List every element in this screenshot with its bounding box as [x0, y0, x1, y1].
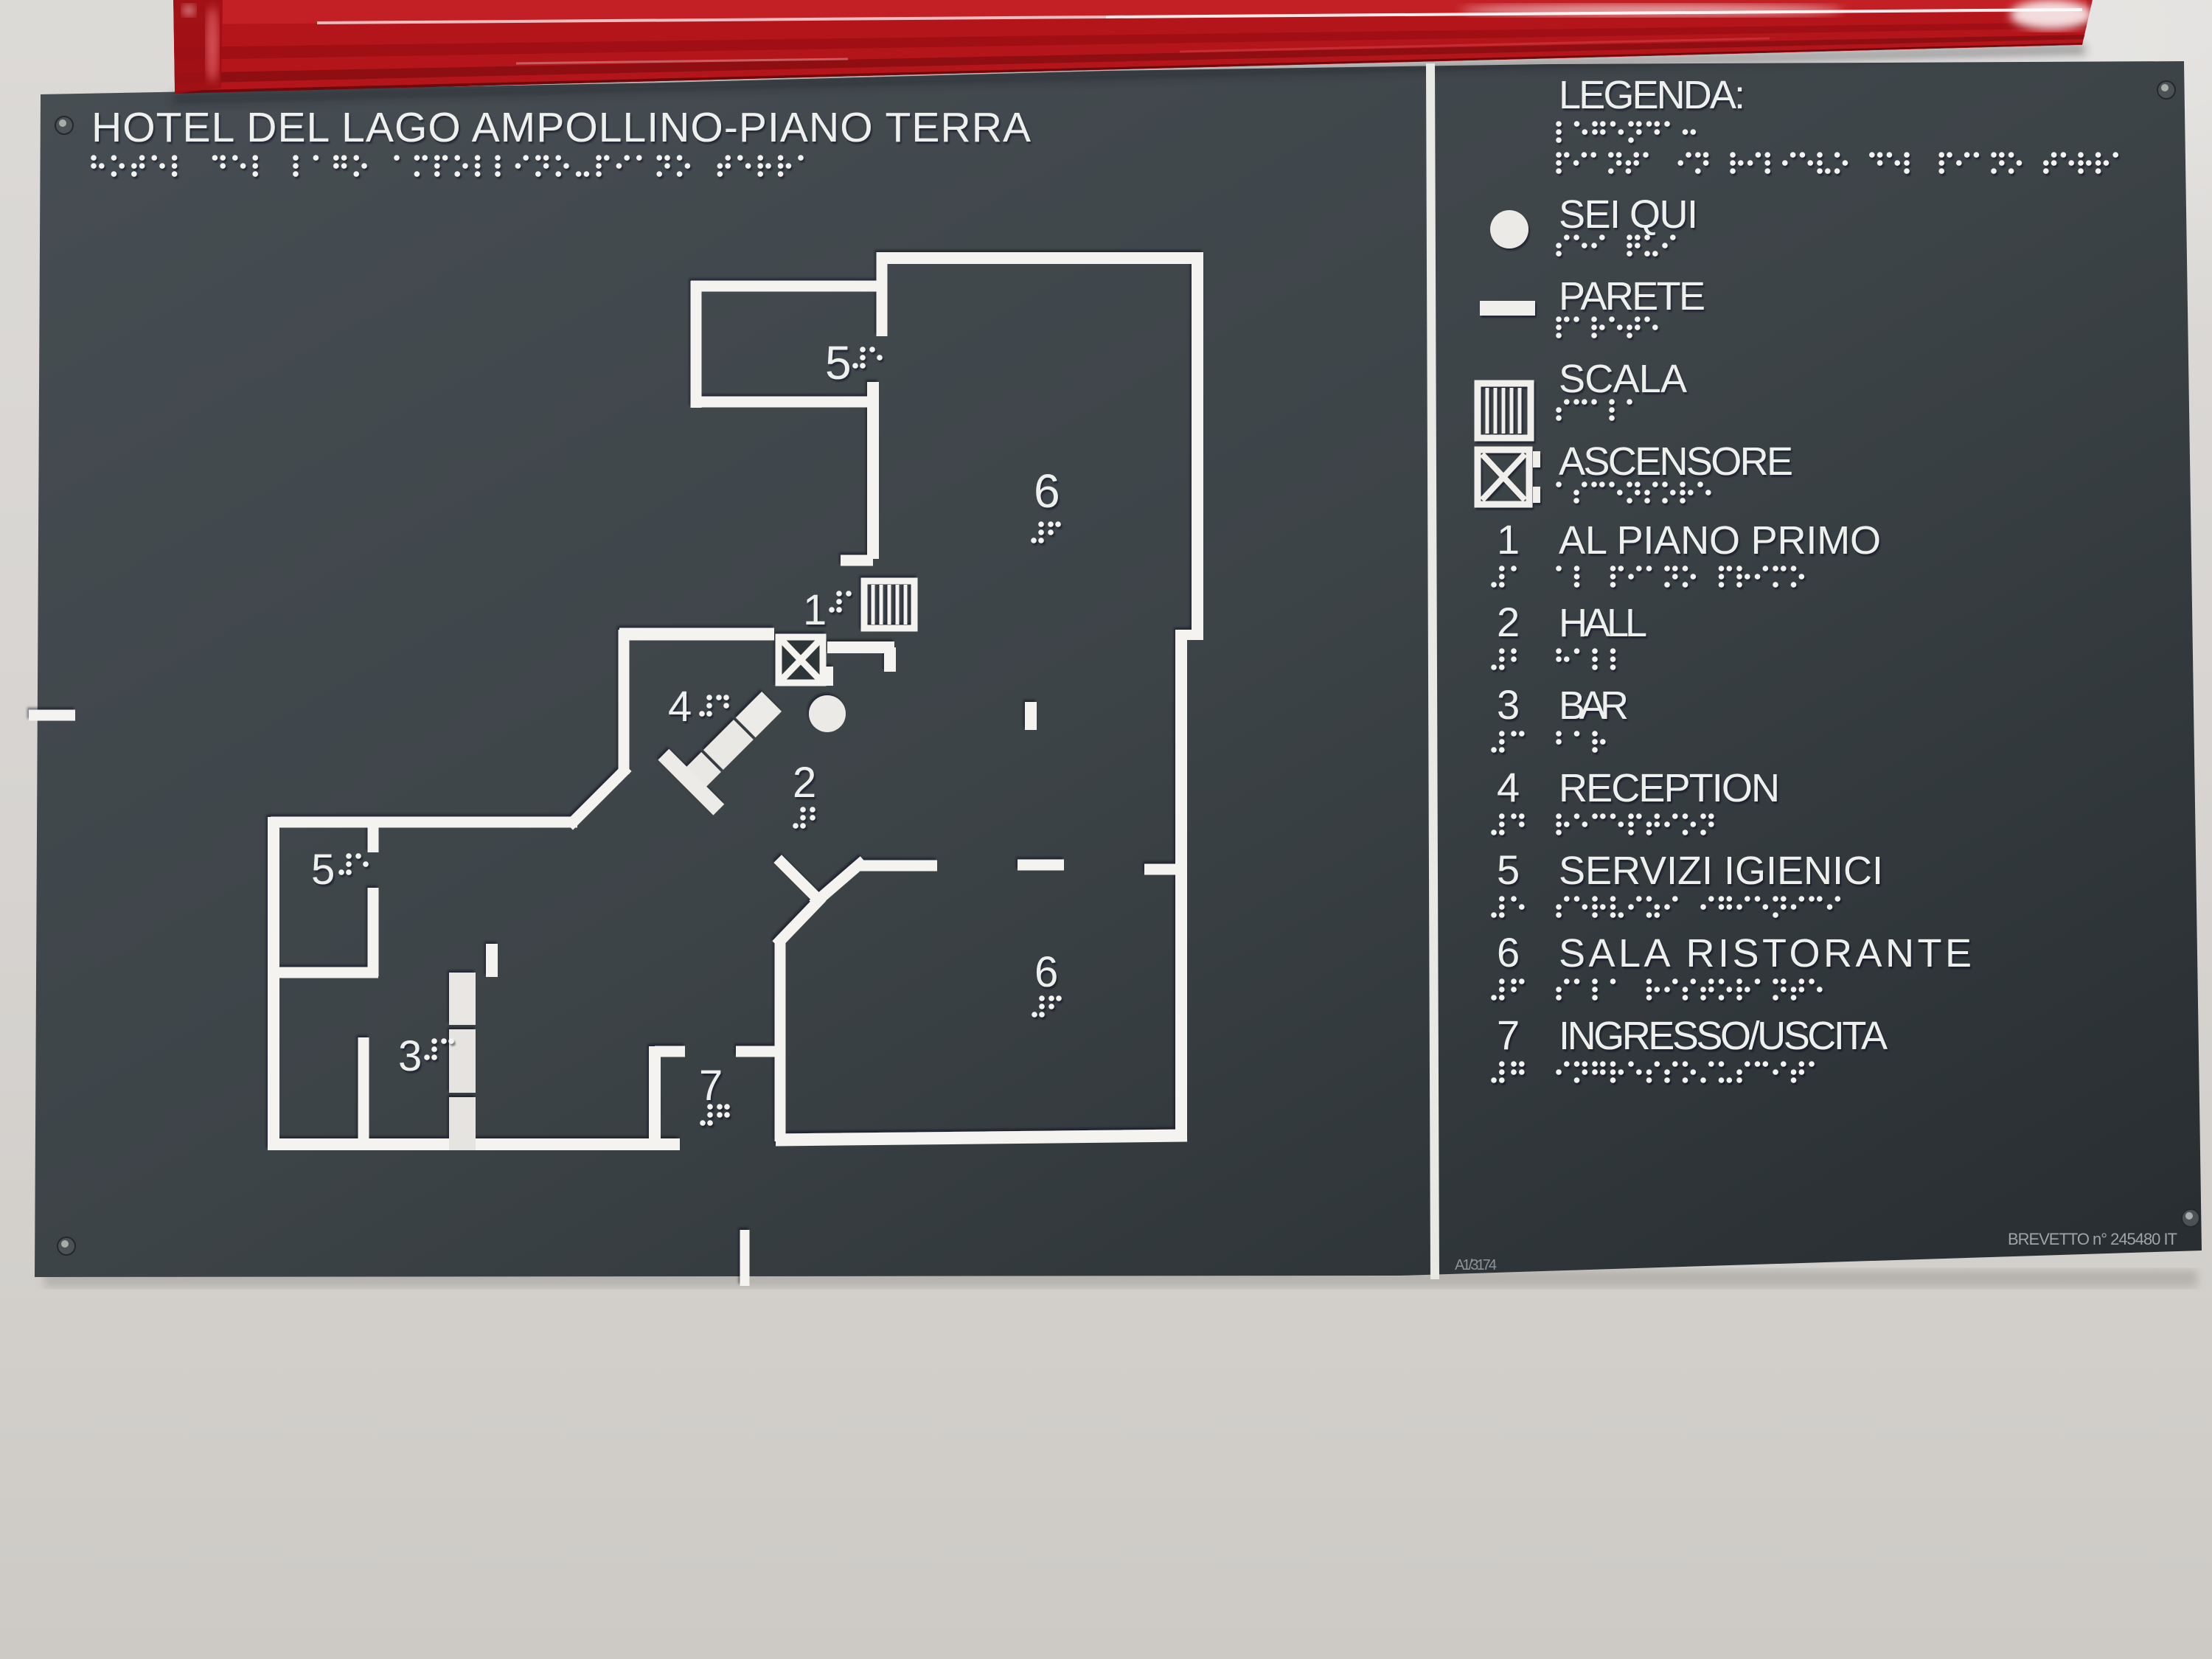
svg-text:BREVETTO n° 245480 IT: BREVETTO n° 245480 IT	[2008, 1230, 2177, 1248]
svg-text:ASCENSORE: ASCENSORE	[1559, 439, 1793, 484]
svg-text:AL PIANO PRIMO: AL PIANO PRIMO	[1559, 518, 1881, 563]
svg-text:BAR: BAR	[1559, 684, 1629, 728]
svg-text:5: 5	[1497, 846, 1520, 893]
svg-text:6: 6	[1497, 929, 1520, 975]
svg-text:SERVIZI IGIENICI: SERVIZI IGIENICI	[1559, 849, 1883, 893]
svg-text:4: 4	[668, 683, 692, 731]
svg-text:5: 5	[825, 336, 852, 389]
svg-text:HOTEL DEL LAGO AMPOLLINO-PIANO: HOTEL DEL LAGO AMPOLLINO-PIANO TERRA	[91, 104, 1031, 151]
svg-text:6: 6	[1034, 948, 1058, 996]
svg-text:SCALA: SCALA	[1559, 357, 1687, 401]
svg-text:1: 1	[1497, 516, 1520, 563]
svg-text:3: 3	[1497, 681, 1520, 728]
svg-text:3: 3	[398, 1032, 422, 1080]
svg-text:INGRESSO/USCITA: INGRESSO/USCITA	[1559, 1014, 1888, 1058]
svg-text:7: 7	[699, 1062, 723, 1110]
svg-text:PARETE: PARETE	[1559, 274, 1705, 319]
svg-text:5: 5	[311, 846, 335, 894]
svg-text:1: 1	[803, 586, 827, 634]
svg-text:4: 4	[1497, 764, 1520, 810]
svg-text:2: 2	[1497, 599, 1520, 645]
svg-text:HALL: HALL	[1559, 601, 1647, 645]
svg-text:LEGENDA:: LEGENDA:	[1559, 73, 1745, 117]
svg-text:SEI QUI: SEI QUI	[1559, 192, 1698, 237]
svg-text:SALA RISTORANTE: SALA RISTORANTE	[1559, 931, 1972, 975]
svg-text:A1/3174: A1/3174	[1455, 1257, 1497, 1273]
svg-text:RECEPTION: RECEPTION	[1559, 766, 1780, 810]
svg-text:7: 7	[1497, 1012, 1520, 1058]
svg-text:6: 6	[1034, 465, 1060, 518]
svg-text:2: 2	[793, 759, 816, 807]
